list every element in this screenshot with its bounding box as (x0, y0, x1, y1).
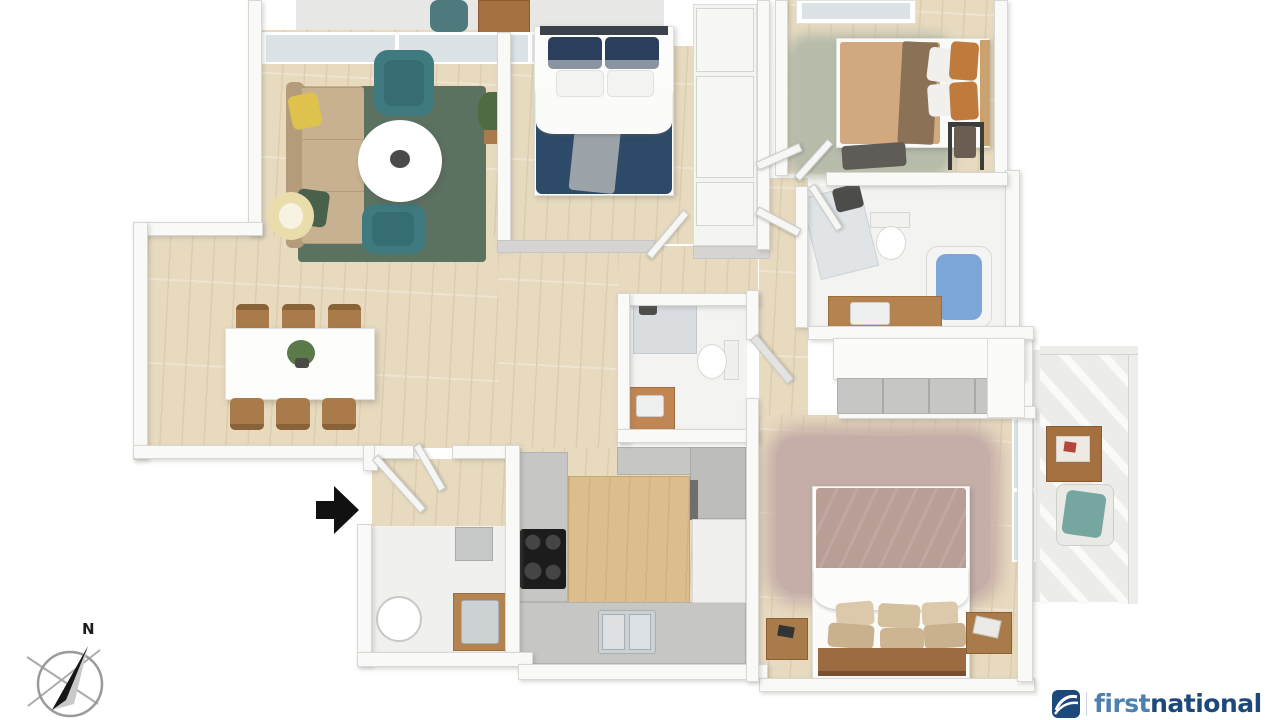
ensuite-toilet-bowl (697, 344, 727, 379)
bed2-duvet (536, 90, 672, 134)
armchair-cushion (384, 60, 424, 106)
toilet-bowl (876, 226, 906, 260)
entry-floor (372, 459, 508, 529)
master-robe-end (987, 338, 1025, 418)
wall-outer-left-dining (133, 222, 148, 460)
master-pillow (923, 623, 967, 650)
clothes-rack-clothes (954, 126, 976, 158)
compass-icon (20, 612, 124, 720)
laundry-tub (376, 596, 422, 642)
bed2-wardrobe-door (696, 8, 754, 72)
kitchen-oven-strip (690, 480, 698, 520)
master-pillow (827, 622, 875, 649)
wall-outer-right-bathroom (1005, 170, 1020, 340)
wall-bedroom2-south-a (497, 240, 655, 253)
bedroom-3-window-glass (802, 3, 910, 19)
kitchen-cabinet-top (617, 447, 691, 475)
wall-ensuite-south (617, 429, 759, 443)
wall-bathroom-west (795, 186, 808, 328)
compass-label: N (82, 620, 95, 638)
wall-laundry-north-b (452, 445, 510, 459)
wall-ensuite-north (617, 293, 759, 306)
wall-ensuite-west (617, 293, 630, 443)
kitchen-cabinet-right (692, 519, 746, 603)
clothes-rack-post (948, 122, 952, 170)
floor-lamp-top (279, 203, 303, 229)
outdoor-chair-top (430, 0, 468, 32)
brand-logo: firstnational (1052, 688, 1278, 720)
master-pillow (880, 628, 924, 650)
laundry-appliance (455, 527, 493, 561)
brand-text-first: first (1094, 689, 1150, 719)
wall-living-bedroom2 (497, 32, 511, 250)
bed3-foot-bench (841, 142, 907, 170)
wall-laundry-kitchen (505, 445, 520, 656)
bed2-wardrobe-door (696, 182, 754, 226)
bed2-pillow-navy (605, 37, 659, 69)
wall-outer-bottom-laundry (357, 652, 533, 667)
bed2-pillow-white (556, 70, 604, 97)
wall-outer-bottom-dining (133, 445, 379, 459)
kitchen-sink-basin (602, 614, 625, 650)
master-headboard (818, 648, 966, 676)
clothes-rack-post (980, 122, 984, 170)
balcony-chair-cushion (1061, 489, 1107, 538)
bed2-headboard (540, 26, 668, 35)
balcony-railing-edge (1128, 346, 1138, 604)
bed2-pillow-navy (548, 37, 602, 69)
brand-logo-divider (1086, 692, 1087, 716)
wall-outer-left-living (248, 0, 262, 236)
brand-text-national: national (1150, 689, 1262, 719)
ensuite-basin (636, 395, 664, 417)
bed2-wardrobe-door (696, 76, 754, 178)
accent-chair-cushion (372, 212, 414, 246)
compass: N (20, 612, 124, 720)
wall-outer-bottom-kitchen (518, 664, 768, 680)
bathroom-basin (850, 302, 890, 325)
hallway-floor (498, 246, 618, 448)
kitchen-sink-basin (629, 614, 651, 650)
wall-outer-left-laundry (357, 524, 372, 666)
dining-chair (276, 398, 310, 430)
dining-chair (230, 398, 264, 430)
bed3-pillow-orange (949, 81, 979, 120)
wall-kitchen-master (746, 398, 759, 682)
bed2-pillow-white (607, 70, 654, 97)
wall-outer-bottom-master (759, 678, 1035, 692)
coffee-table-centerpiece (390, 150, 410, 168)
bathtub-water (936, 254, 982, 320)
entry-arrow-icon (316, 483, 360, 537)
brand-logo-icon (1052, 690, 1080, 718)
dining-chair (322, 398, 356, 430)
bed3-pillow-orange (949, 41, 980, 81)
balcony-tray-item (1063, 441, 1076, 453)
wall-outer-right-bedroom3 (994, 0, 1008, 176)
floor-plan-canvas: N firstnational (0, 0, 1280, 720)
nightstand-left (766, 618, 808, 660)
balcony-railing-top (1040, 346, 1138, 355)
cooktop (520, 529, 566, 589)
laundry-sink (461, 600, 499, 644)
dining-table-plant-pot (295, 358, 309, 368)
kitchen-island-bench (568, 476, 690, 606)
wall-bedroom3-south (826, 172, 1008, 186)
master-pillow (877, 603, 920, 629)
kitchen-fridge (690, 447, 746, 519)
wall-ensuite-east-upper (746, 290, 759, 340)
wall-step-left (133, 222, 263, 236)
